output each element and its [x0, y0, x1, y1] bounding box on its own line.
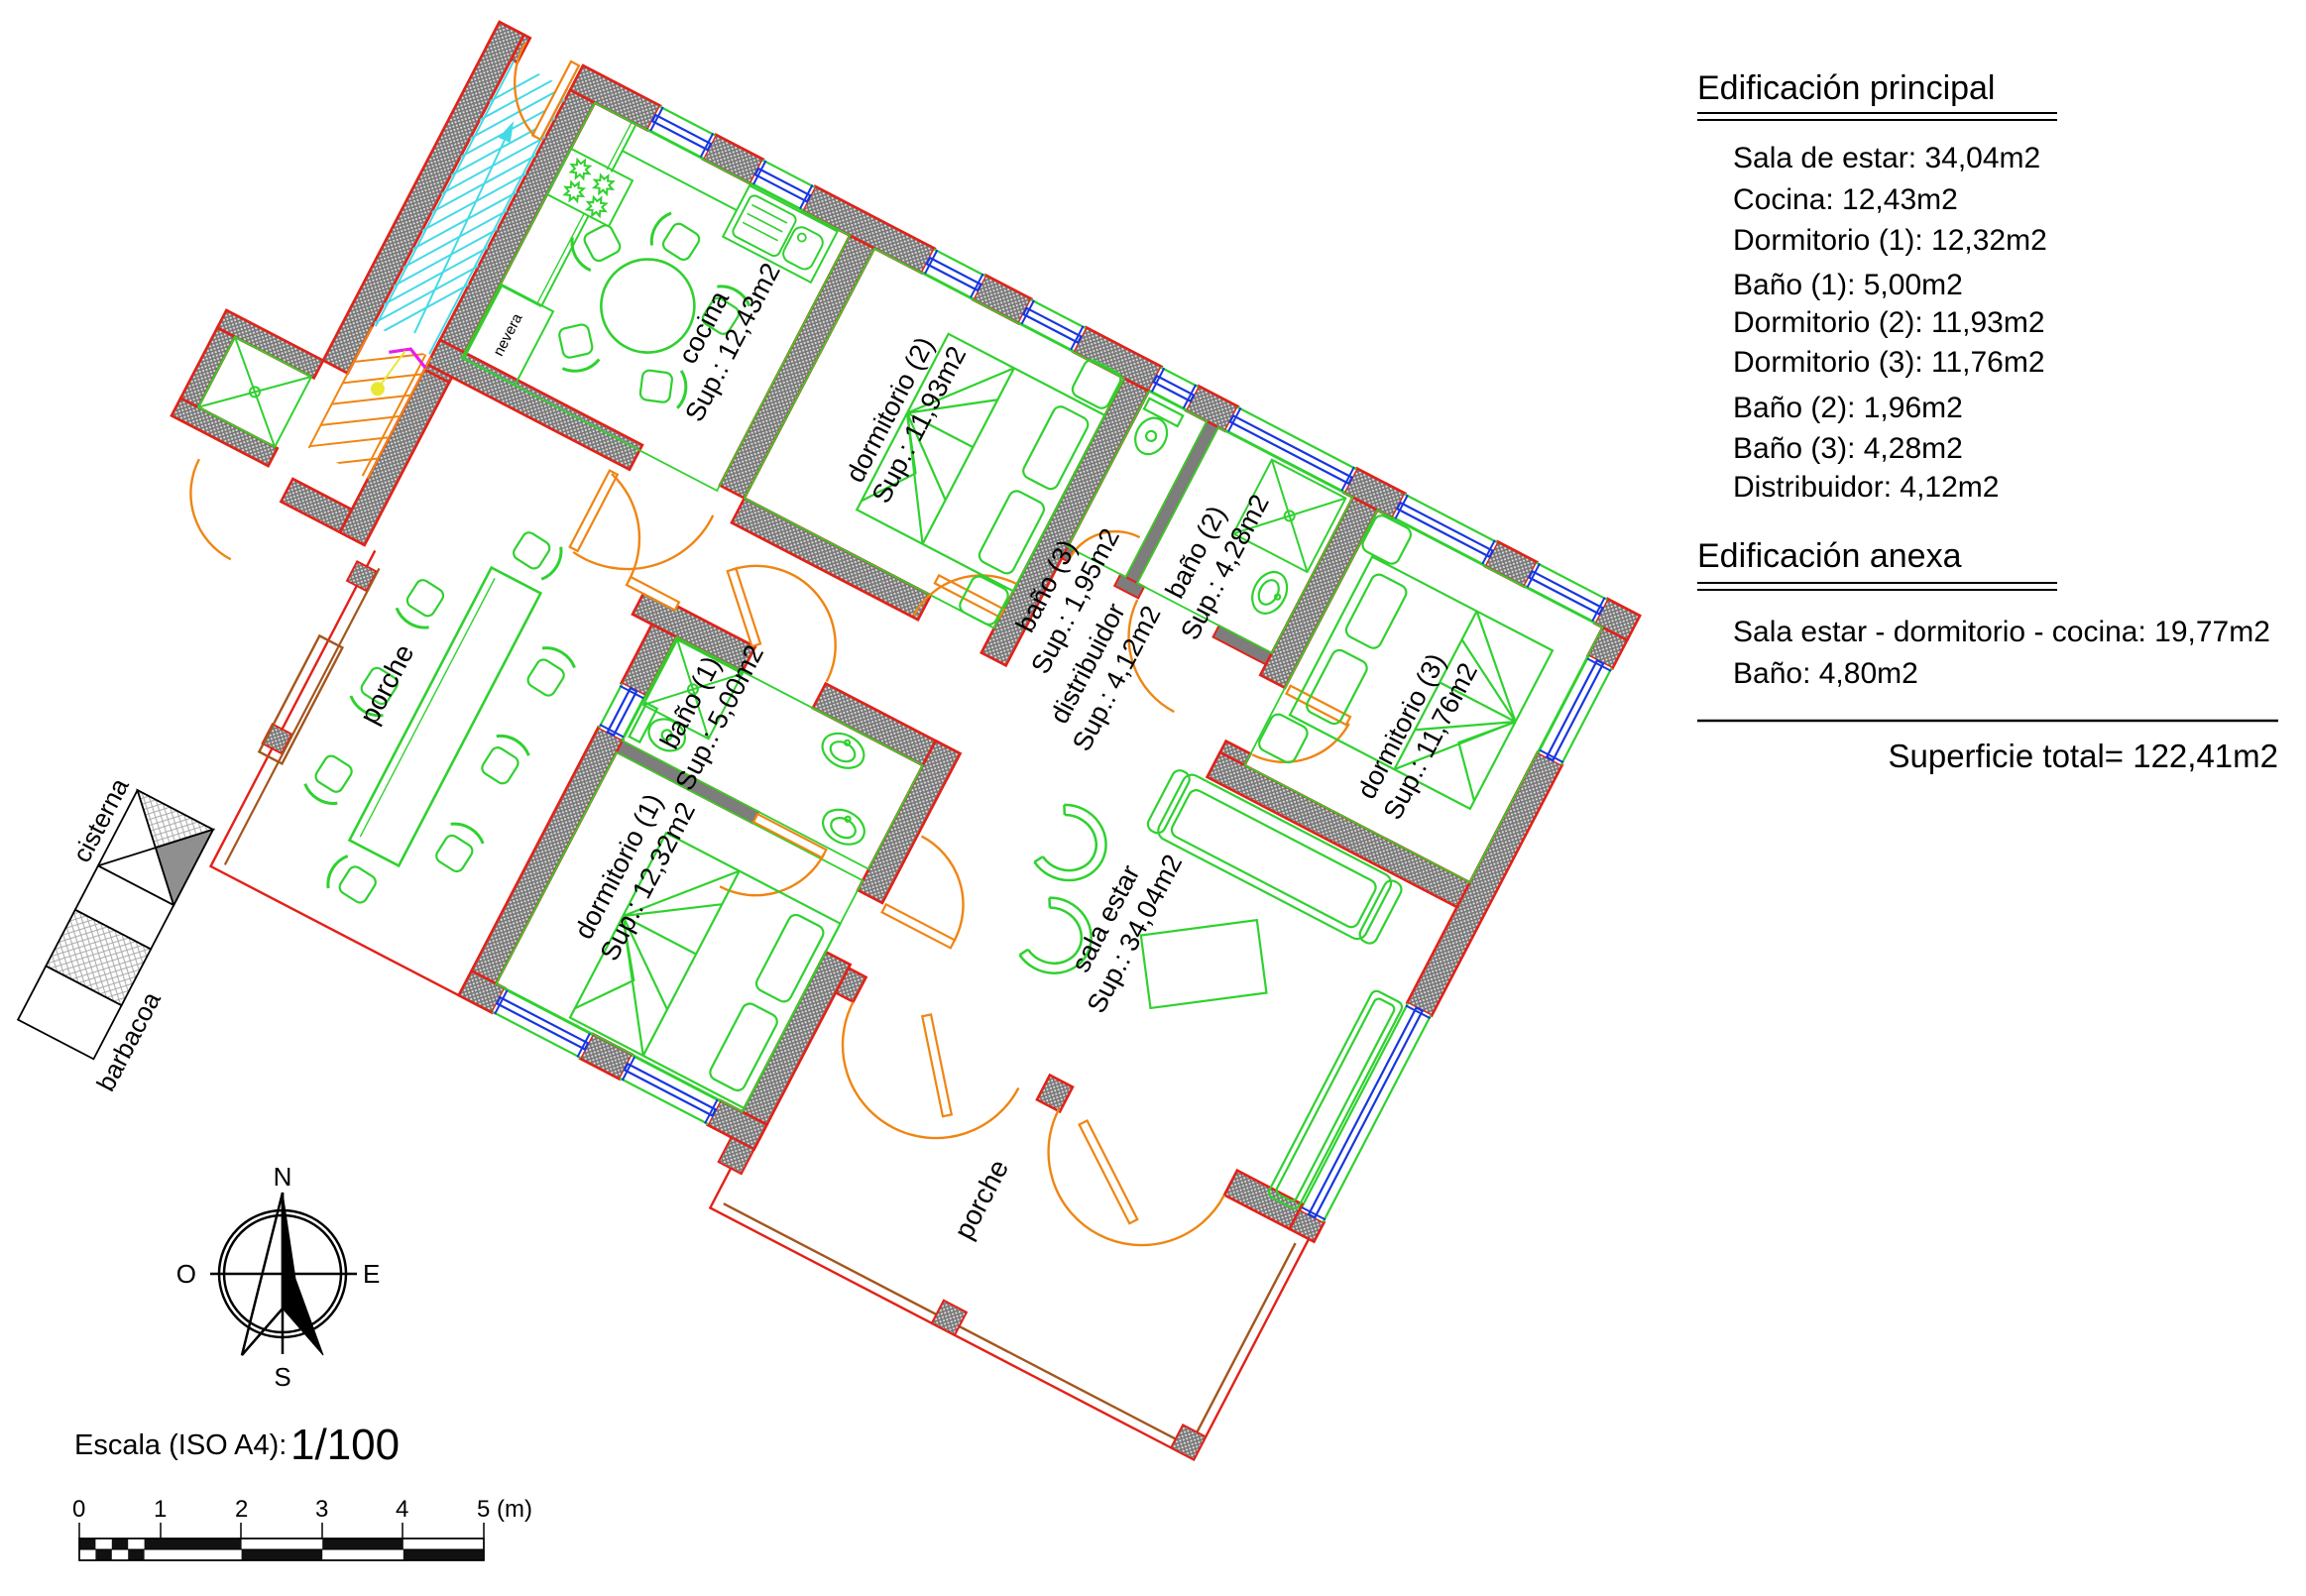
svg-text:Edificación principal: Edificación principal [1697, 69, 1996, 107]
svg-text:Sala estar - dormitorio - coci: Sala estar - dormitorio - cocina: 19,77m… [1733, 616, 2270, 648]
svg-text:Baño: 4,80m2: Baño: 4,80m2 [1733, 657, 1918, 690]
svg-text:Cocina: 12,43m2: Cocina: 12,43m2 [1733, 183, 1958, 216]
svg-text:Distribuidor: 4,12m2: Distribuidor: 4,12m2 [1733, 471, 1999, 504]
svg-text:N: N [274, 1162, 292, 1192]
svg-text:porche: porche [948, 1155, 1014, 1244]
svg-text:5 (m): 5 (m) [477, 1496, 532, 1523]
svg-text:1/100: 1/100 [290, 1421, 400, 1469]
svg-text:2: 2 [235, 1496, 248, 1523]
svg-text:Baño (3): 4,28m2: Baño (3): 4,28m2 [1733, 432, 1963, 465]
svg-text:Dormitorio (3): 11,76m2: Dormitorio (3): 11,76m2 [1733, 346, 2045, 379]
svg-text:Sala de estar: 34,04m2: Sala de estar: 34,04m2 [1733, 142, 2040, 174]
svg-text:Baño (1): 5,00m2: Baño (1): 5,00m2 [1733, 269, 1963, 301]
svg-text:Baño (2): 1,96m2: Baño (2): 1,96m2 [1733, 392, 1963, 424]
svg-text:3: 3 [315, 1496, 328, 1523]
svg-text:O: O [176, 1259, 196, 1289]
svg-text:Dormitorio (2): 11,93m2: Dormitorio (2): 11,93m2 [1733, 306, 2045, 339]
svg-text:S: S [274, 1362, 290, 1392]
svg-text:Dormitorio (1): 12,32m2: Dormitorio (1): 12,32m2 [1733, 224, 2047, 257]
svg-text:nevera: nevera [490, 310, 526, 359]
svg-text:Edificación anexa: Edificación anexa [1697, 537, 1962, 575]
svg-text:Escala (ISO A4):: Escala (ISO A4): [74, 1429, 287, 1461]
svg-text:E: E [363, 1259, 380, 1289]
svg-text:4: 4 [396, 1496, 408, 1523]
svg-text:Superficie total= 122,41m2: Superficie total= 122,41m2 [1888, 738, 2278, 774]
svg-text:0: 0 [72, 1496, 85, 1523]
svg-text:1: 1 [154, 1496, 167, 1523]
